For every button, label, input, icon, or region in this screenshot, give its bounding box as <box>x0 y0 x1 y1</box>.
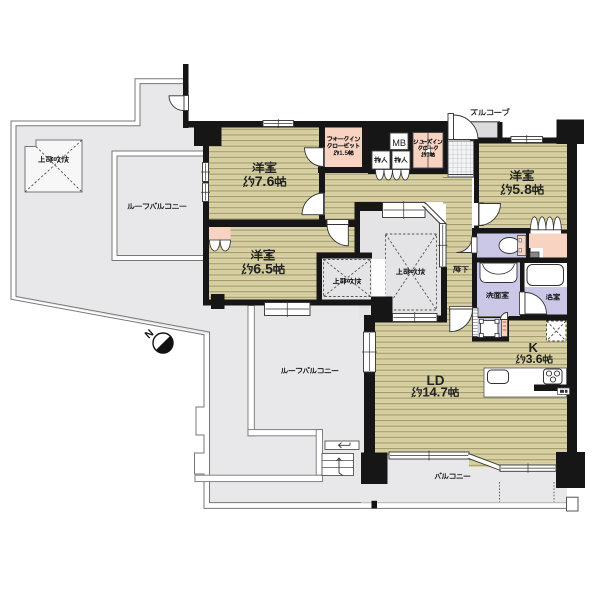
svg-text:5: 5 <box>265 261 273 277</box>
svg-text:5: 5 <box>345 150 349 157</box>
svg-text:6: 6 <box>267 173 275 189</box>
svg-text:MB: MB <box>392 138 406 148</box>
svg-text:8: 8 <box>524 181 532 197</box>
svg-text:7: 7 <box>441 384 448 399</box>
svg-text:ュ: ュ <box>419 140 425 146</box>
svg-text:6: 6 <box>536 352 543 366</box>
